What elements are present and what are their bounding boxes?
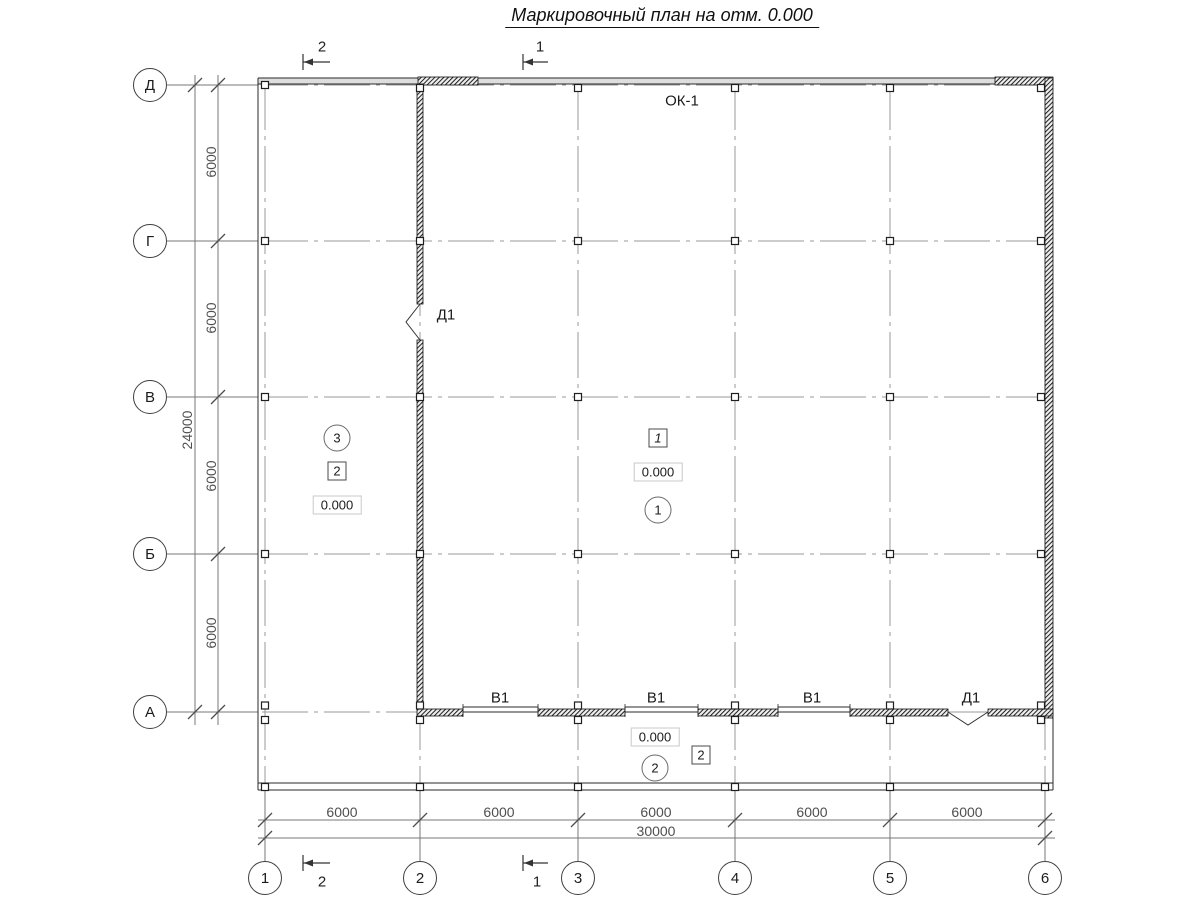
- axis-row-v-label: В: [145, 389, 155, 406]
- room-left-type-box: 2: [328, 462, 347, 481]
- room-main-type-box: 1: [649, 429, 668, 448]
- dim-h-bay-1: 6000: [326, 805, 357, 819]
- axis-row-g: Г: [133, 224, 167, 258]
- dim-v-bay-3: 6000: [204, 460, 218, 491]
- section-mark-1-top-label: 1: [536, 40, 544, 55]
- dim-v-bay-2: 6000: [204, 302, 218, 333]
- door-mark-d1-bottom: Д1: [962, 691, 981, 706]
- axis-col-2: 2: [403, 861, 437, 895]
- dim-h-total: 30000: [637, 824, 676, 838]
- door-mark-d1-wall: Д1: [437, 308, 456, 323]
- room-left-number-circle: 3: [324, 425, 351, 452]
- dim-v-total: 24000: [180, 411, 194, 450]
- axis-row-b: Б: [133, 537, 167, 571]
- section-mark-2-bottom-label: 2: [318, 875, 326, 890]
- plan-title: Маркировочный план на отм. 0.000: [505, 6, 819, 28]
- section-mark-1-bottom-label: 1: [533, 875, 541, 890]
- marking-plan-canvas: Маркировочный план на отм. 0.000 Д Г В Б…: [0, 0, 1200, 900]
- door-symbols: [406, 304, 988, 725]
- door-d1-wall-symbol: [406, 304, 420, 340]
- axis-col-6: 6: [1028, 861, 1062, 895]
- axis-col-5: 5: [873, 861, 907, 895]
- dim-v-bay-4: 6000: [204, 617, 218, 648]
- axis-col-1-label: 1: [261, 870, 269, 887]
- axis-row-d: Д: [133, 68, 167, 102]
- axis-col-4: 4: [718, 861, 752, 895]
- room-strip-type-box: 2: [692, 746, 711, 765]
- window-band: [258, 78, 1053, 84]
- plan-drawing: [0, 0, 1200, 900]
- axis-row-v: В: [133, 380, 167, 414]
- axis-col-1: 1: [248, 861, 282, 895]
- dimension-ticks: [188, 78, 1052, 845]
- axis-col-5-label: 5: [886, 870, 894, 887]
- dimension-lines: [195, 75, 1055, 838]
- dim-h-bay-4: 6000: [796, 805, 827, 819]
- room-main-number: 1: [654, 503, 661, 518]
- room-left-number: 3: [333, 431, 340, 446]
- dim-v-bay-1: 6000: [204, 146, 218, 177]
- section-mark-2-top-label: 2: [318, 40, 326, 55]
- room-main-level-mark: 0.000: [634, 463, 683, 482]
- room-strip-level-mark: 0.000: [631, 728, 680, 747]
- dim-h-bay-3: 6000: [640, 805, 671, 819]
- axis-row-a-label: А: [145, 704, 155, 721]
- axis-col-3-label: 3: [574, 870, 582, 887]
- axis-col-4-label: 4: [731, 870, 739, 887]
- gate-mark-v1-1: В1: [491, 691, 509, 706]
- axis-col-2-label: 2: [416, 870, 424, 887]
- room-left-level-mark: 0.000: [313, 496, 362, 515]
- axis-col-6-label: 6: [1041, 870, 1049, 887]
- dim-h-bay-5: 6000: [951, 805, 982, 819]
- axis-row-a: А: [133, 695, 167, 729]
- gate-mark-v1-3: В1: [803, 691, 821, 706]
- dim-h-bay-2: 6000: [483, 805, 514, 819]
- room-strip-number: 2: [651, 761, 658, 776]
- axis-row-d-label: Д: [145, 77, 155, 94]
- room-strip-number-circle: 2: [642, 755, 669, 782]
- axis-row-g-label: Г: [146, 233, 154, 250]
- room-main-number-circle: 1: [645, 497, 672, 524]
- gate-mark-v1-2: В1: [647, 691, 665, 706]
- axis-leader-lines: [167, 85, 1045, 861]
- window-mark-ok1: ОК-1: [665, 94, 699, 109]
- door-d1-bottom-symbol: [948, 712, 988, 725]
- axis-col-3: 3: [561, 861, 595, 895]
- axis-row-b-label: Б: [145, 546, 155, 563]
